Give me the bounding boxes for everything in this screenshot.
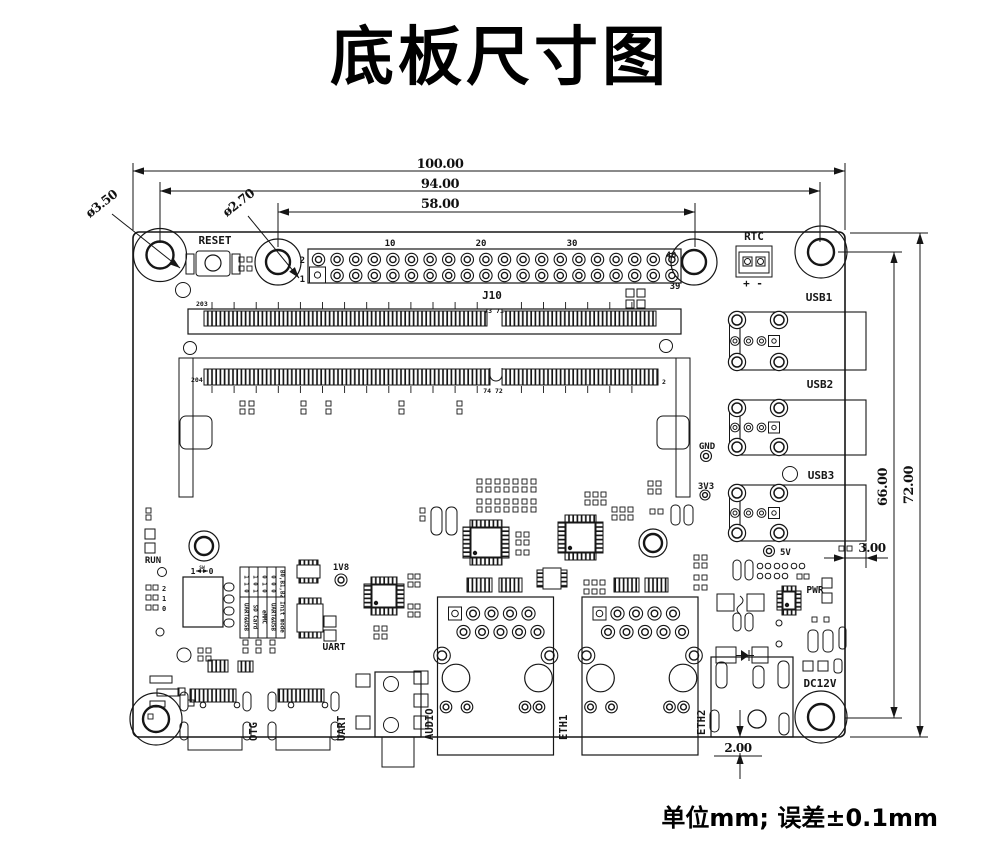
boot-row3-bits: 1 1 0 xyxy=(243,575,249,593)
uart-ic-label: UART xyxy=(323,642,346,653)
usb1-label: USB1 xyxy=(806,291,833,304)
rtc-polarity-label: + - xyxy=(743,277,763,290)
rtc-label: RTC xyxy=(744,230,764,243)
reset-label: RESET xyxy=(198,234,231,247)
5v-label: 5V xyxy=(780,548,791,558)
boot-row1-bits: 0 1 0 xyxy=(261,575,267,593)
dip-2-label: 2 xyxy=(162,585,166,593)
usb2-label: USB2 xyxy=(807,378,834,391)
page: 底板尺寸图 xyxy=(0,0,1000,868)
sodimm-2-label: 2 xyxy=(662,378,666,386)
boot-row0-bits: 0 0 0 xyxy=(270,575,276,593)
boot-row2-bits: 1 0 1 xyxy=(252,575,258,593)
1v8-label: 1V8 xyxy=(333,563,349,573)
dim-header-hole-dia: ø2.70 xyxy=(219,185,257,220)
leader-hole-3-5 xyxy=(112,214,180,268)
run-label: RUN xyxy=(145,556,161,566)
dim-board-width: 100.00 xyxy=(417,157,464,172)
j10-pin30-label: 30 xyxy=(567,239,578,249)
pcb-dimension-drawing: 100.00 94.00 58.00 72.00 66.00 3.00 2.00… xyxy=(0,0,1000,868)
dip-0-label: 0 xyxy=(162,605,166,613)
usb3-label: USB3 xyxy=(808,469,835,482)
dim-eth-overhang: 2.00 xyxy=(724,741,751,755)
boot-header-bits: B0,B1,B2 xyxy=(279,570,285,598)
dim-right-hole-span: 66.00 xyxy=(876,467,891,506)
otg-label: OTG xyxy=(248,722,260,741)
dc12v-label: DC12V xyxy=(803,677,836,690)
boot-row1-mode: eMMC xyxy=(261,610,267,624)
boot-header-mode: Init mode xyxy=(279,601,285,633)
switch-0-label: 0 xyxy=(209,567,214,576)
sodimm-74-72-label: 74 72 xyxy=(483,387,503,395)
dim-usb-overhang: 3.00 xyxy=(858,541,885,555)
audio-label: AUDIO xyxy=(424,708,436,740)
dim-mount-hole-span: 94.00 xyxy=(421,177,460,192)
boot-row0-mode: UART&USB xyxy=(270,603,276,631)
boot-mode-table: B0,B1,B2 Init mode 0 0 0 UART&USB 0 1 0 … xyxy=(240,567,285,638)
dim-board-height: 72.00 xyxy=(902,465,917,504)
dip-1-label: 1 xyxy=(162,595,166,603)
sodimm-203-label: 203 xyxy=(196,300,208,308)
pwr-label: PWR xyxy=(806,585,823,596)
j10-pin20-label: 20 xyxy=(476,239,487,249)
eth1-label: ETH1 xyxy=(558,715,570,740)
j10-pin10-label: 10 xyxy=(385,239,396,249)
dim-mount-hole-dia: ø3.50 xyxy=(82,186,120,221)
switch-1-label: 1 xyxy=(191,567,196,576)
boot-row3-mode: UART&USB xyxy=(243,603,249,631)
tolerance-note: 单位mm; 误差±0.1mm xyxy=(661,798,938,833)
j10-pin1-label: 1 xyxy=(300,275,305,285)
boot-row2-mode: SD Card xyxy=(252,605,258,630)
j10-label: J10 xyxy=(482,289,502,302)
page-title: 底板尺寸图 xyxy=(0,26,1000,90)
dim-header-hole-span: 58.00 xyxy=(421,197,460,212)
uart-port-label: UART xyxy=(336,716,348,741)
